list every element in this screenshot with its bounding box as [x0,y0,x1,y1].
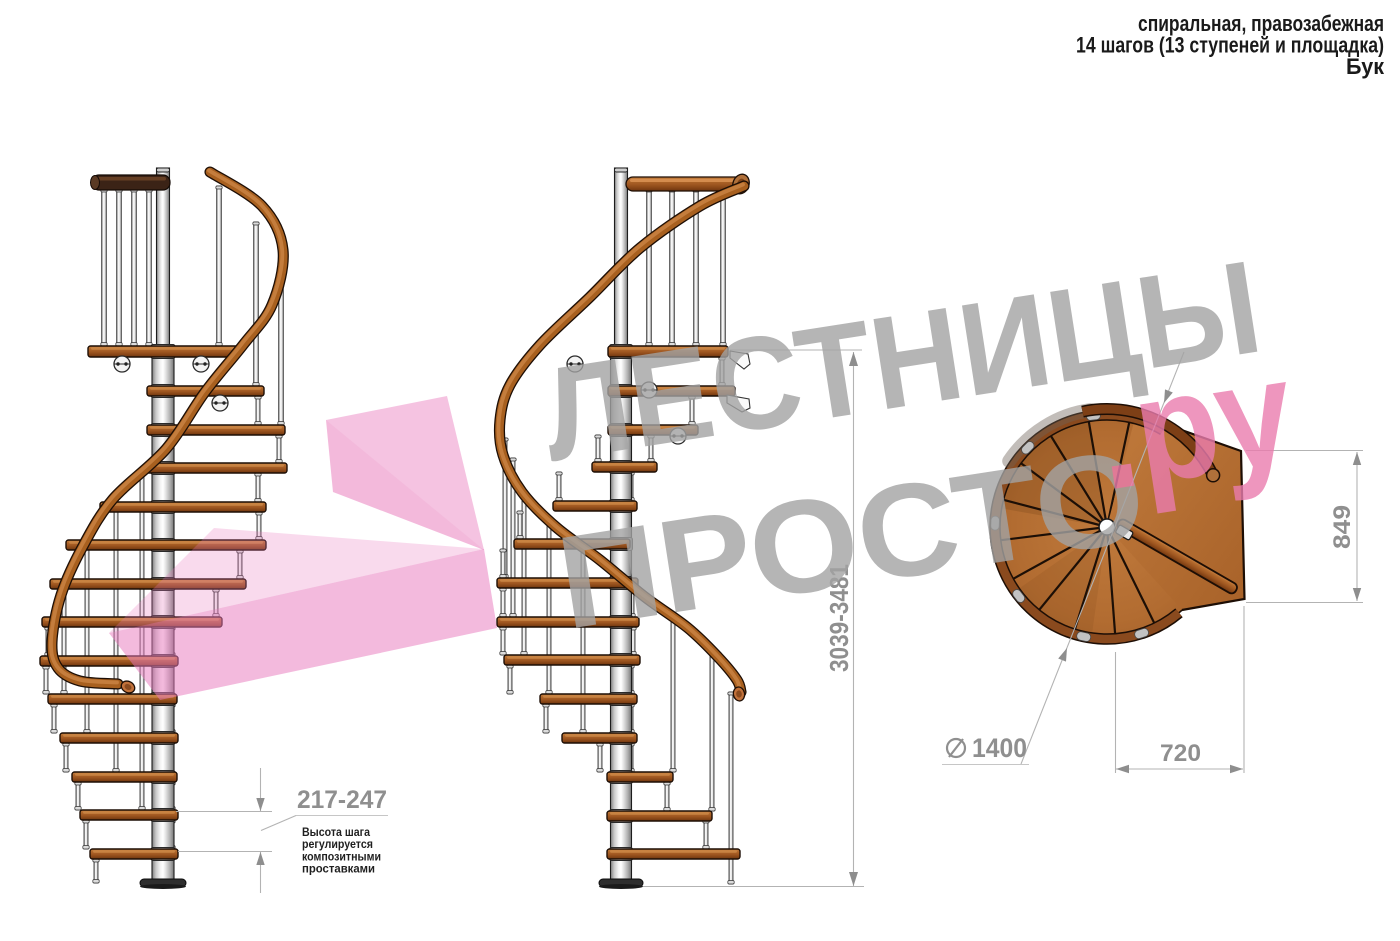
svg-text:849: 849 [1329,505,1356,549]
svg-text:.ру: .ру [1085,326,1303,522]
svg-text:14 шагов (13 ступеней и площад: 14 шагов (13 ступеней и площадка) [1076,33,1384,58]
svg-text:проставками: проставками [302,863,375,876]
svg-text:композитными: композитными [302,850,381,863]
svg-text:Высота шага: Высота шага [302,826,371,839]
svg-text:Бук: Бук [1346,54,1385,79]
svg-text:1400: 1400 [972,733,1027,763]
svg-text:регулируется: регулируется [302,838,373,851]
svg-text:217-247: 217-247 [297,786,387,814]
svg-text:720: 720 [1160,740,1201,767]
